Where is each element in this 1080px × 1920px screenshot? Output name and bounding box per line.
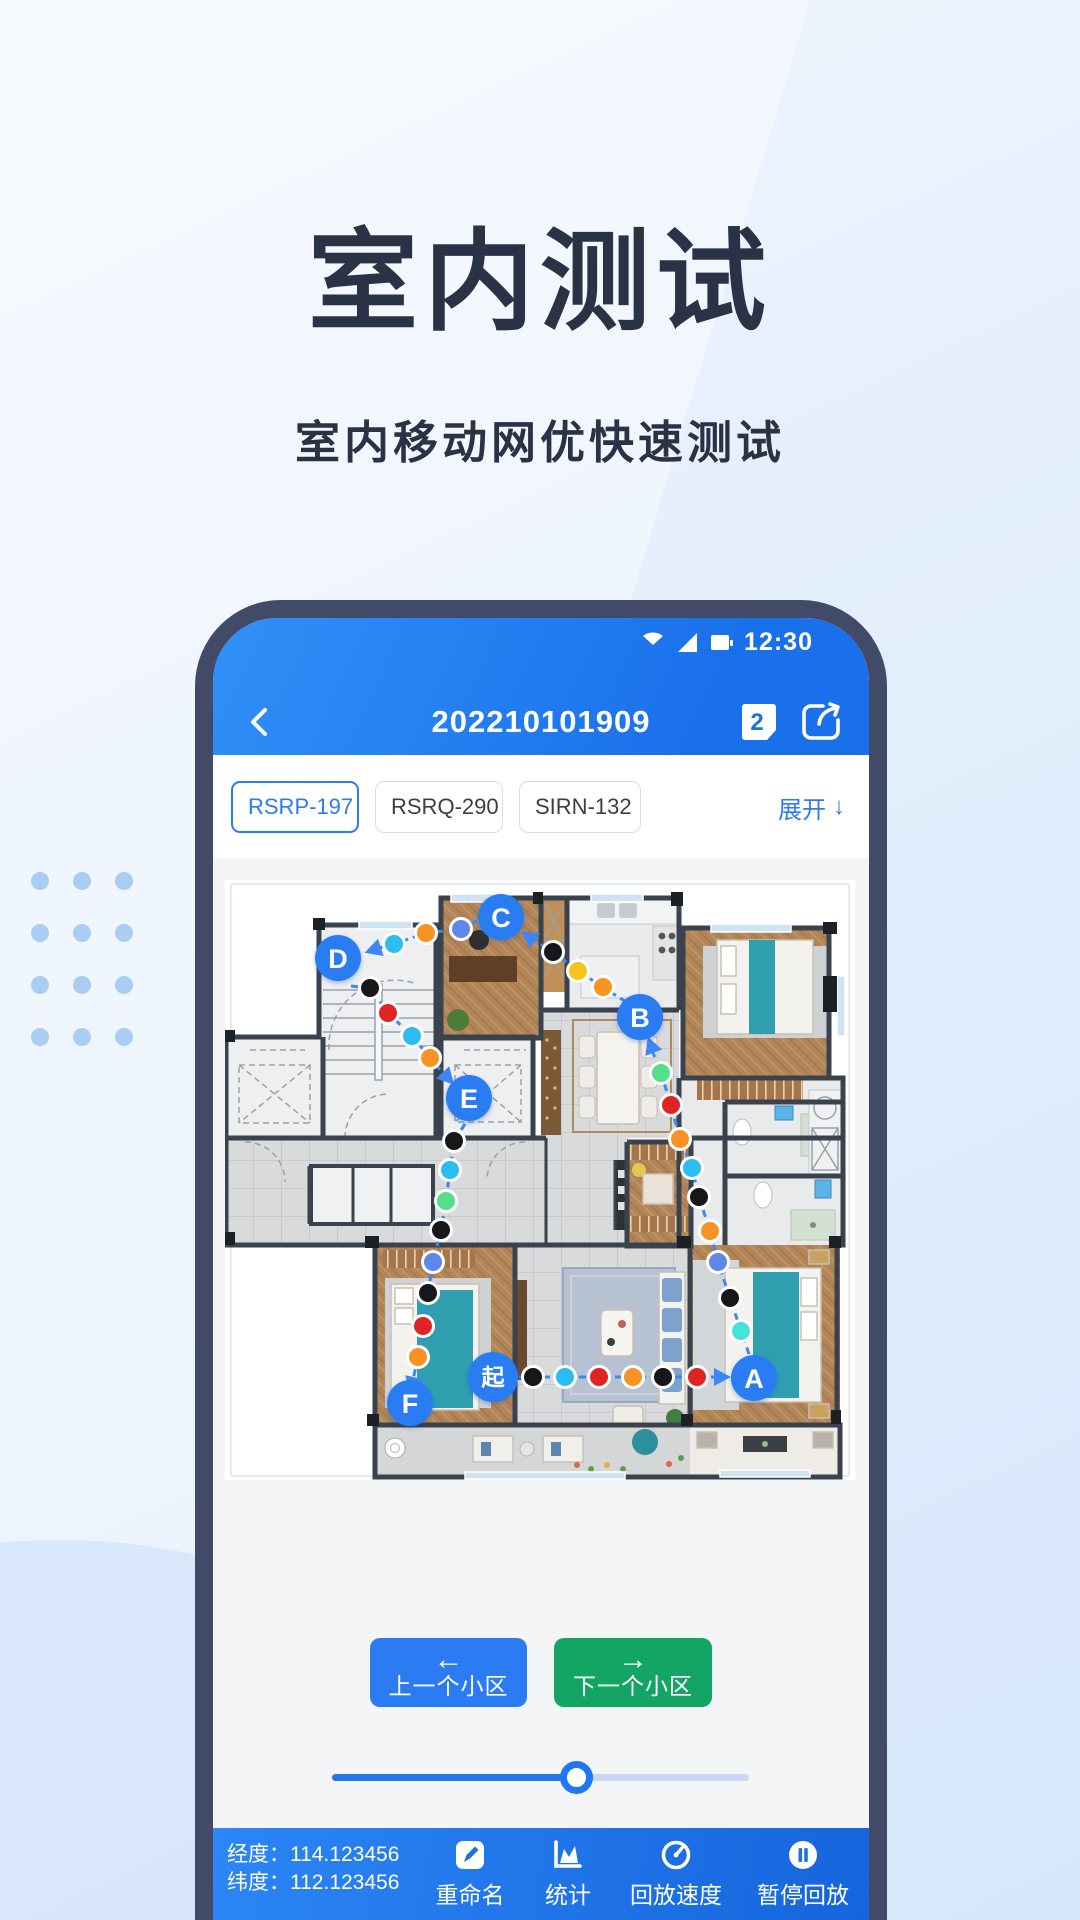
sample-dot-red [413,1316,434,1337]
sample-dot-black [653,1367,674,1388]
sample-dot-orange [670,1129,691,1150]
sample-dot-black [689,1187,710,1208]
app-header: 12:30 202210101909 2 [213,618,869,755]
wifi-icon [640,630,666,656]
svg-text:B: B [630,1003,650,1033]
route-marker-E[interactable]: E [446,1075,492,1121]
longitude-row: 经度：114.123456 [227,1841,399,1869]
slider-thumb[interactable] [560,1761,593,1794]
svg-text:E: E [460,1084,478,1114]
svg-text:A: A [744,1364,764,1394]
sample-dot-cyan [384,934,405,955]
statistics-chart-icon [551,1839,585,1871]
sample-dot-black [444,1131,465,1152]
gps-coordinates: 经度：114.123456 纬度：112.123456 [227,1841,399,1897]
sample-dot-red [661,1095,682,1116]
route-marker-C[interactable]: C [478,894,524,940]
sample-dot-cyan [440,1160,461,1181]
arrow-left-icon: ← [434,1647,464,1673]
nav-row: 202210101909 2 [213,694,869,750]
sample-dot-red [589,1367,610,1388]
bottom-action-bar: 经度：114.123456 纬度：112.123456 重命名 统计 [213,1828,869,1920]
battery-icon [709,630,735,655]
status-bar: 12:30 [640,628,813,657]
previous-cell-button[interactable]: ← 上一个小区 [370,1638,527,1707]
sample-dot-orange [623,1367,644,1388]
rename-pencil-icon [454,1839,486,1871]
pause-playback-icon [787,1839,819,1871]
sample-dot-cyan [402,1026,423,1047]
sample-dot-red [378,1003,399,1024]
sample-dot-aqua [731,1321,752,1342]
sample-dot-cyan [682,1158,703,1179]
latitude-row: 纬度：112.123456 [227,1869,399,1897]
share-icon[interactable] [799,700,847,744]
playback-speed-icon [660,1839,692,1871]
phone-screen: 12:30 202210101909 2 [213,618,869,1920]
svg-text:D: D [328,944,348,974]
svg-text:起: 起 [482,1364,506,1390]
phone-mockup: 12:30 202210101909 2 [195,600,887,1920]
document-count-button[interactable]: 2 [737,700,781,744]
marketing-page: 室内测试 室内移动网优快速测试 12:30 [0,0,1080,1920]
route-marker-F[interactable]: F [387,1380,433,1426]
document-count-badge: 2 [750,709,763,736]
metric-chip-rsrp[interactable]: RSRP -197 [231,781,359,833]
sample-dot-blue [451,919,472,940]
sample-dot-orange [420,1048,441,1069]
sample-dot-black [431,1220,452,1241]
sample-dot-green [436,1191,457,1212]
cell-buttons-row: ← 上一个小区 → 下一个小区 [213,1638,869,1707]
arrow-right-icon: → [618,1647,648,1673]
sample-dot-green [651,1063,672,1084]
expand-button[interactable]: 展开 ↓ [778,781,845,833]
svg-text:F: F [402,1389,419,1419]
route-marker-A[interactable]: A [731,1355,777,1401]
status-time: 12:30 [744,628,813,657]
route-marker-D[interactable]: D [315,935,361,981]
sample-dot-cyan [555,1367,576,1388]
app-content: ABCDEF起 ← 上一个小区 → 下一个小区 [213,858,869,1828]
page-subtitle: 室内移动网优快速测试 [0,406,1080,471]
metric-chip-sirn[interactable]: SIRN -132 [519,781,641,833]
page-title: 室内测试 [0,192,1080,352]
sample-dot-orange [593,977,614,998]
svg-text:C: C [491,903,511,933]
floorplan-map[interactable]: ABCDEF起 [225,880,855,1480]
sample-dot-red [687,1367,708,1388]
sample-dot-black [523,1367,544,1388]
sample-dot-black [543,942,564,963]
sample-dot-blue [423,1252,444,1273]
sample-dot-yellow [568,961,589,982]
signal-icon [675,630,700,655]
slider-fill [332,1774,576,1781]
metric-chip-rsrq[interactable]: RSRQ -290 [375,781,503,833]
statistics-button[interactable]: 统计 [513,1828,623,1920]
route-marker-B[interactable]: B [617,994,663,1040]
next-cell-button[interactable]: → 下一个小区 [554,1638,712,1707]
sample-dot-black [720,1288,741,1309]
sample-dot-orange [416,923,437,944]
pause-playback-button[interactable]: 暂停回放 [748,1828,858,1920]
playback-progress-slider[interactable] [332,1760,749,1794]
sample-dot-black [418,1283,439,1304]
dots-grid-decoration [31,872,135,1048]
sample-dot-black [360,978,381,999]
playback-speed-button[interactable]: 回放速度 [621,1828,731,1920]
route-marker-start[interactable]: 起 [468,1352,518,1402]
arrow-down-icon: ↓ [833,793,845,821]
metrics-bar: RSRP -197 RSRQ -290 SIRN -132 展开 ↓ [213,755,869,858]
sample-dot-orange [408,1347,429,1368]
sample-dot-blue [708,1252,729,1273]
rename-button[interactable]: 重命名 [415,1828,525,1920]
sample-dot-orange [700,1221,721,1242]
